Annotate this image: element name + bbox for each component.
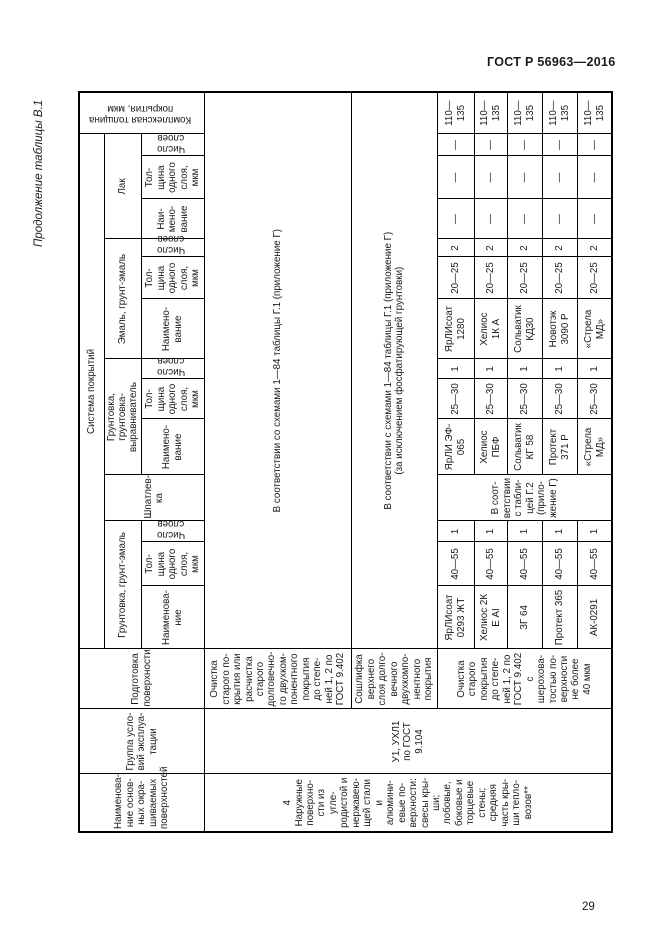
header-total-thickness: Комплексная толщина покрытия, мкм [79,92,204,134]
header-enamel-thickness: Тол- щина одного слоя, мкм [141,257,204,299]
cell-leveling-thickness-3: 25—30 [507,379,542,419]
header-surface-name: Наименова- ние основ- ных окра- шиваемых… [79,774,204,832]
cell-system-variant-a: В соответствии со схемами 1—84 таблицы Г… [204,92,351,649]
cell-putty-variant-c: В соот- ветствии с табли- цей Г.2 (прило… [437,475,612,521]
cell-service-group: У1, УХЛ1 по ГОСТ 9.104 [204,709,612,774]
header-enamel-layers: Число слоев [141,239,204,257]
cell-enamel-thickness-3: 20—25 [507,257,542,299]
cell-enamel-thickness-5: 20—25 [577,257,612,299]
document-page: ГОСТ Р 56963—2016 Продолжение таблицы В.… [0,0,661,935]
cell-primer-layers-3: 1 [507,521,542,542]
cell-leveling-layers-2: 1 [474,359,507,379]
header-group-enamel: Эмаль, грунт-эмаль [104,239,141,359]
cell-primer-layers-2: 1 [474,521,507,542]
cell-leveling-name-1: ЯрЛИ ЭФ- 065 [437,419,474,475]
cell-primer-layers-4: 1 [542,521,577,542]
cell-enamel-layers-1: 2 [437,239,474,257]
cell-total-thickness-5: 110— 135 [577,92,612,134]
header-varnish-thickness: Тол- щина одного слоя, мкм [141,156,204,199]
cell-system-variant-b: В соответствии с схемами 1—84 таблицы Г.… [351,92,437,649]
cell-leveling-layers-1: 1 [437,359,474,379]
cell-total-thickness-2: 110— 135 [474,92,507,134]
cell-primer-thickness-5: 40—55 [577,542,612,586]
cell-leveling-thickness-1: 25—30 [437,379,474,419]
cell-enamel-thickness-1: 20—25 [437,257,474,299]
cell-leveling-layers-5: 1 [577,359,612,379]
cell-varnish-layers-4: — [542,134,577,156]
cell-enamel-thickness-2: 20—25 [474,257,507,299]
header-varnish-layers-text: Число слоев [157,132,185,154]
cell-varnish-thickness-1: — [437,156,474,199]
cell-primer-thickness-2: 40—55 [474,542,507,586]
cell-varnish-name-5: — [577,199,612,239]
header-primer-layers: Число слоев [141,521,204,542]
cell-varnish-name-1: — [437,199,474,239]
header-coating-system-group: Система покрытий [79,134,104,649]
cell-primer-name-2: Хелиос 2К Е АI [474,586,507,649]
cell-leveling-name-3: Сольватик КГ 58 [507,419,542,475]
cell-enamel-layers-3: 2 [507,239,542,257]
header-leveling-thickness: Тол- щина одного слоя, мкм [141,379,204,419]
cell-prep-variant-a: Очистка старого по- крытия или расчистка… [204,649,351,709]
cell-leveling-thickness-2: 25—30 [474,379,507,419]
cell-primer-name-1: ЯрЛИсоат 0293 ЖТ [437,586,474,649]
header-primer-name: Наименова- ние [141,586,204,649]
cell-varnish-thickness-3: — [507,156,542,199]
cell-varnish-name-2: — [474,199,507,239]
page-number: 29 [582,901,595,913]
cell-varnish-thickness-5: — [577,156,612,199]
cell-leveling-thickness-5: 25—30 [577,379,612,419]
cell-leveling-layers-3: 1 [507,359,542,379]
cell-total-thickness-1: 110— 135 [437,92,474,134]
cell-varnish-layers-1: — [437,134,474,156]
header-primer-thickness: Тол- щина одного слоя, мкм [141,542,204,586]
header-leveling-layers-text: Число слоев [157,355,185,377]
header-surface-prep: Подготовка поверхности [79,649,204,709]
header-total-thickness-text: Комплексная толщина покрытия, мкм [89,102,191,124]
cell-enamel-name-3: Сольватик КД30 [507,299,542,359]
cell-enamel-name-2: Хелиос 1К А [474,299,507,359]
standard-number: ГОСТ Р 56963—2016 [487,55,615,69]
cell-varnish-layers-5: — [577,134,612,156]
header-leveling-name: Наимено- вание [141,419,204,475]
cell-varnish-name-3: — [507,199,542,239]
cell-primer-name-4: Протект 365 [542,586,577,649]
cell-enamel-thickness-4: 20—25 [542,257,577,299]
cell-primer-name-5: АК-0291 [577,586,612,649]
cell-varnish-thickness-4: — [542,156,577,199]
header-varnish-layers: Число слоев [141,134,204,156]
cell-enamel-name-5: «Стрела МД» [577,299,612,359]
coating-systems-table: Наименова- ние основ- ных окра- шиваемых… [78,91,613,833]
cell-surface-description: 4 Наружные поверхно- сти из угле- родист… [204,774,612,832]
cell-varnish-name-4: — [542,199,577,239]
header-service-group: Группа усло- вий эксплуа- тации [79,709,204,774]
header-enamel-name: Наимено- вание [141,299,204,359]
cell-enamel-name-1: ЯрЛИсоат 1280 [437,299,474,359]
header-enamel-layers-text: Число слоев [157,233,185,255]
header-group-leveling-primer: Грунтовка, грунтовка-выравниватель [104,359,141,475]
cell-primer-name-3: ЗГ 64 [507,586,542,649]
cell-primer-layers-1: 1 [437,521,474,542]
header-primer-layers-text: Число слоев [157,518,185,540]
cell-varnish-thickness-2: — [474,156,507,199]
cell-enamel-layers-4: 2 [542,239,577,257]
cell-primer-thickness-1: 40—55 [437,542,474,586]
cell-enamel-layers-2: 2 [474,239,507,257]
header-group-putty: Шпатлев- ка [104,475,204,521]
cell-leveling-layers-4: 1 [542,359,577,379]
cell-varnish-layers-3: — [507,134,542,156]
cell-prep-variant-c: Очистка старого покрытия до степе- ней 1… [437,649,612,709]
cell-total-thickness-4: 110— 135 [542,92,577,134]
table-caption: Продолжение таблицы В.1 [33,100,45,247]
cell-primer-thickness-4: 40—55 [542,542,577,586]
header-leveling-layers: Число слоев [141,359,204,379]
cell-enamel-name-4: Новотэк 3090 Р [542,299,577,359]
rotated-table-container: Наименова- ние основ- ных окра- шиваемых… [78,93,593,833]
cell-leveling-name-5: «Стрела МД» [577,419,612,475]
header-group-varnish: Лак [104,134,141,239]
header-group-primer: Грунтовка, грунт-эмаль [104,521,141,649]
cell-enamel-layers-5: 2 [577,239,612,257]
cell-leveling-name-2: Хелиос ПБФ [474,419,507,475]
cell-leveling-name-4: Протект 371 Р [542,419,577,475]
cell-varnish-layers-2: — [474,134,507,156]
cell-total-thickness-3: 110— 135 [507,92,542,134]
cell-primer-thickness-3: 40—55 [507,542,542,586]
cell-prep-variant-b: Сошлифка верхнего слоя долго- вечного дв… [351,649,437,709]
cell-leveling-thickness-4: 25—30 [542,379,577,419]
cell-primer-layers-5: 1 [577,521,612,542]
